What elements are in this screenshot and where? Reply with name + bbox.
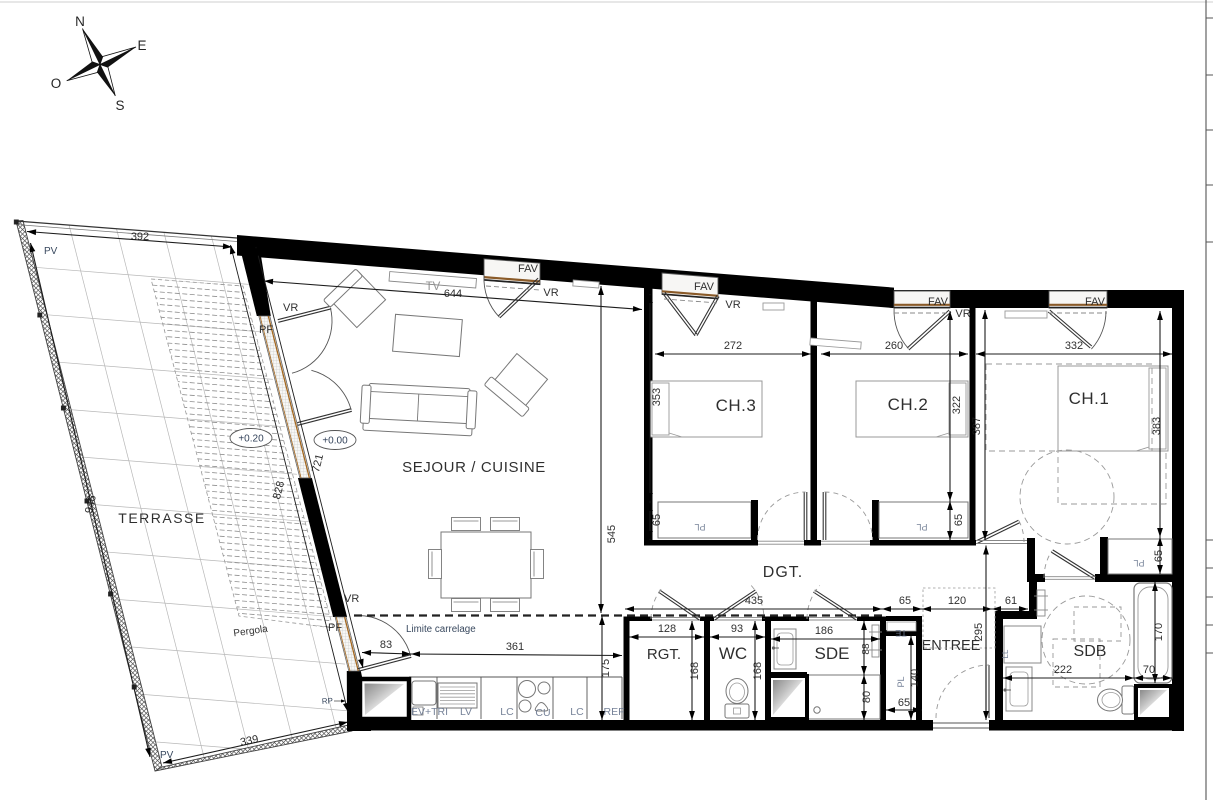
- svg-text:ENTREE: ENTREE: [922, 638, 981, 654]
- svg-text:PL: PL: [1133, 558, 1144, 568]
- svg-text:+0.00: +0.00: [322, 436, 348, 447]
- svg-text:140: 140: [909, 669, 921, 687]
- svg-text:SDB: SDB: [1074, 643, 1107, 660]
- svg-text:61: 61: [1005, 595, 1017, 607]
- svg-text:65: 65: [1153, 550, 1165, 562]
- svg-text:222: 222: [1054, 664, 1072, 676]
- svg-text:PV: PV: [160, 750, 174, 761]
- svg-text:VR: VR: [955, 308, 970, 320]
- svg-text:120: 120: [948, 595, 966, 607]
- svg-text:LC: LC: [500, 706, 514, 718]
- svg-text:PL: PL: [896, 676, 906, 687]
- svg-text:93: 93: [731, 623, 743, 635]
- svg-text:168: 168: [689, 662, 701, 680]
- svg-text:TE: TE: [895, 628, 907, 638]
- svg-text:88: 88: [861, 643, 872, 655]
- svg-text:175: 175: [600, 659, 612, 677]
- svg-text:295: 295: [973, 623, 985, 641]
- svg-text:DGT.: DGT.: [763, 564, 803, 581]
- svg-text:644: 644: [444, 288, 462, 300]
- svg-text:FAV: FAV: [694, 281, 715, 293]
- svg-text:CH.2: CH.2: [888, 395, 929, 414]
- svg-text:128: 128: [658, 623, 676, 635]
- svg-text:VR: VR: [725, 299, 740, 311]
- svg-text:FAV: FAV: [518, 263, 539, 275]
- svg-text:PF: PF: [259, 324, 273, 336]
- svg-text:PV: PV: [44, 246, 58, 257]
- svg-text:LV: LV: [460, 706, 472, 718]
- svg-text:WC: WC: [719, 644, 747, 663]
- svg-text:80: 80: [861, 691, 873, 703]
- svg-text:TERRASSE: TERRASSE: [118, 510, 205, 526]
- svg-text:FAV: FAV: [1085, 296, 1106, 308]
- svg-text:Limite carrelage: Limite carrelage: [406, 624, 476, 635]
- svg-text:RP: RP: [322, 696, 334, 706]
- svg-text:65: 65: [898, 697, 910, 709]
- svg-text:VR: VR: [283, 302, 298, 314]
- svg-text:65: 65: [899, 595, 911, 607]
- svg-text:EV+TRI: EV+TRI: [411, 706, 448, 718]
- svg-text:N: N: [75, 14, 85, 29]
- svg-text:828: 828: [271, 480, 287, 501]
- svg-text:392: 392: [131, 231, 149, 243]
- svg-text:387: 387: [971, 417, 983, 435]
- svg-text:353: 353: [651, 388, 663, 406]
- svg-text:383: 383: [1151, 417, 1163, 435]
- svg-text:545: 545: [606, 525, 618, 543]
- svg-text:PL: PL: [694, 522, 705, 532]
- svg-text:322: 322: [951, 396, 963, 414]
- svg-text:186: 186: [815, 625, 833, 637]
- svg-text:Pergola: Pergola: [233, 624, 269, 640]
- svg-text:PF: PF: [328, 622, 342, 634]
- svg-text:70: 70: [1143, 664, 1155, 676]
- svg-text:LC: LC: [570, 706, 584, 718]
- svg-text:SDE: SDE: [815, 644, 850, 663]
- svg-text:260: 260: [885, 340, 903, 352]
- svg-text:361: 361: [506, 641, 524, 653]
- svg-text:TV: TV: [426, 281, 441, 293]
- svg-text:435: 435: [745, 595, 763, 607]
- svg-text:SEJOUR / CUISINE: SEJOUR / CUISINE: [402, 459, 546, 476]
- svg-text:721: 721: [310, 453, 326, 474]
- svg-text:65: 65: [953, 514, 965, 526]
- svg-text:+0.20: +0.20: [238, 434, 264, 445]
- svg-text:S: S: [115, 98, 124, 113]
- svg-text:83: 83: [380, 639, 392, 651]
- svg-text:PL: PL: [916, 522, 927, 532]
- svg-text:CU: CU: [535, 707, 550, 719]
- svg-text:REF: REF: [604, 706, 625, 718]
- svg-text:170: 170: [1153, 623, 1165, 641]
- svg-text:168: 168: [752, 662, 764, 680]
- svg-text:CH.3: CH.3: [716, 396, 757, 415]
- svg-text:O: O: [51, 76, 62, 91]
- svg-text:65: 65: [651, 514, 663, 526]
- svg-text:E: E: [137, 38, 146, 53]
- svg-text:VR: VR: [543, 287, 558, 299]
- svg-text:LL: LL: [1001, 649, 1010, 658]
- svg-text:CH.1: CH.1: [1069, 389, 1110, 408]
- svg-text:FAV: FAV: [928, 296, 949, 308]
- svg-text:272: 272: [724, 340, 742, 352]
- svg-text:332: 332: [1065, 340, 1083, 352]
- svg-text:RGT.: RGT.: [647, 646, 681, 663]
